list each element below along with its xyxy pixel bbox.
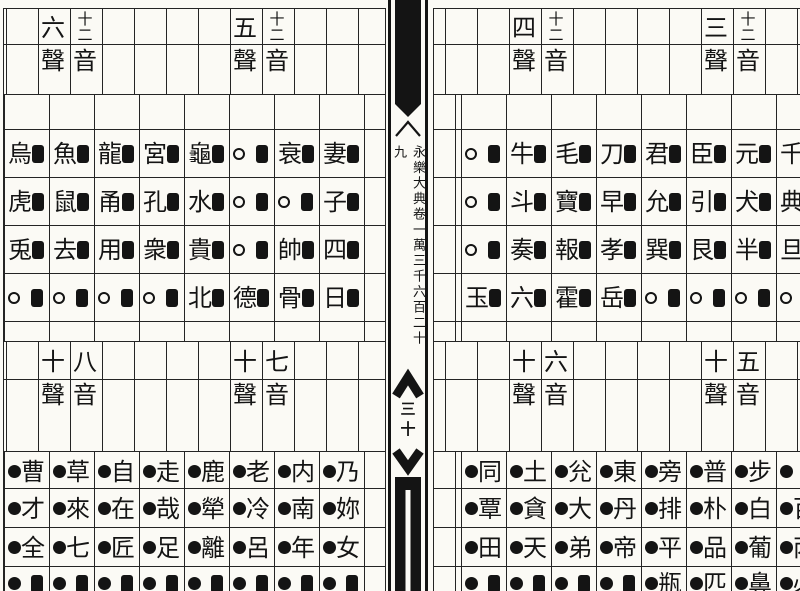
filled-circle-marker	[780, 502, 793, 515]
table-header-left: 十聲	[700, 344, 732, 407]
filled-circle-marker	[735, 502, 748, 515]
table-cell: 瓶	[640, 564, 685, 591]
table-header-right: 五音	[732, 344, 764, 407]
filled-circle-marker	[690, 502, 703, 515]
table-cell: 白	[730, 489, 775, 528]
filled-circle-marker	[645, 577, 658, 590]
phonetic-table-yin5: 五音十聲旁普步卜排朴白百平品葡丙瓶匹鼻必	[0, 0, 800, 591]
table-cell: 匹	[685, 564, 730, 591]
filled-circle-marker	[735, 541, 748, 554]
character: 鼻	[748, 572, 772, 591]
character: 排	[658, 497, 682, 521]
table-cell: 百	[775, 489, 800, 528]
filled-circle-marker	[645, 541, 658, 554]
character: 葡	[748, 536, 772, 560]
table-cell: 步	[730, 452, 775, 491]
table-cell: 品	[685, 528, 730, 567]
character: 百	[793, 497, 800, 521]
character: 必	[793, 572, 800, 591]
filled-circle-marker	[645, 465, 658, 478]
table-cell: 旁	[640, 452, 685, 491]
filled-circle-marker	[690, 465, 703, 478]
table-cell: 排	[640, 489, 685, 528]
character: 瓶	[658, 572, 682, 591]
character: 旁	[658, 460, 682, 484]
table-cell: 必	[775, 564, 800, 591]
filled-circle-marker	[690, 577, 703, 590]
character: 品	[703, 536, 727, 560]
character: 朴	[703, 497, 727, 521]
scanned-document-page: 永樂大典卷一萬三千六百二十九 三十 十二音六聲烏魚龍宮虎鼠甬孔兎去用衆 十二音五…	[0, 0, 800, 591]
filled-circle-marker	[735, 465, 748, 478]
table-cell: 卜	[775, 452, 800, 491]
character: 平	[658, 536, 682, 560]
filled-circle-marker	[645, 502, 658, 515]
table-cell: 丙	[775, 528, 800, 567]
filled-circle-marker	[780, 577, 793, 590]
character: 匹	[703, 572, 727, 591]
filled-circle-marker	[780, 465, 793, 478]
character: 白	[748, 497, 772, 521]
table-cell: 葡	[730, 528, 775, 567]
table-cell: 普	[685, 452, 730, 491]
character: 卜	[793, 460, 800, 484]
character: 步	[748, 460, 772, 484]
filled-circle-marker	[735, 577, 748, 590]
table-cell: 鼻	[730, 564, 775, 591]
filled-circle-marker	[780, 541, 793, 554]
character: 普	[703, 460, 727, 484]
table-cell: 平	[640, 528, 685, 567]
character: 丙	[793, 536, 800, 560]
filled-circle-marker	[690, 541, 703, 554]
table-cell: 朴	[685, 489, 730, 528]
